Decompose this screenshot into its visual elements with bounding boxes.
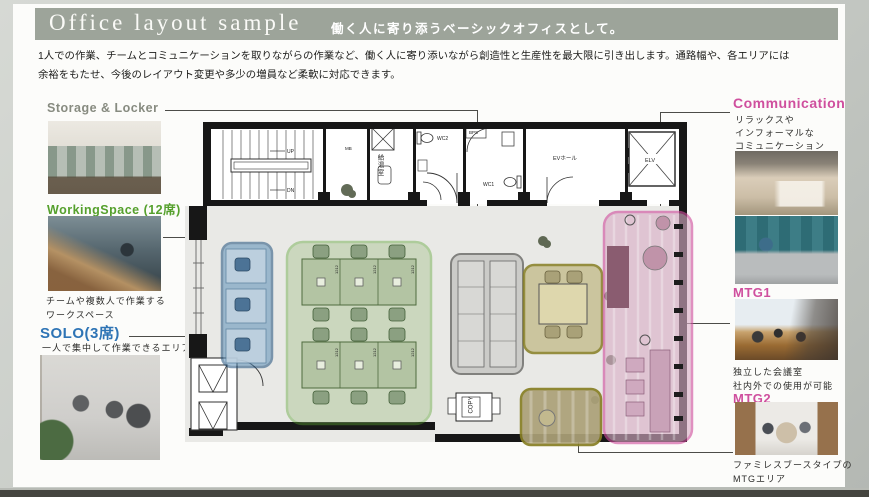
- storage-locker-label: Storage & Locker: [47, 101, 159, 115]
- copy-label: COPY: [469, 396, 475, 413]
- wc2-label: WC2: [437, 136, 448, 142]
- elevator: ELV: [625, 132, 675, 186]
- stair-dn-label: DN: [287, 188, 295, 194]
- mtg2-zone: [521, 389, 601, 445]
- ev-hall-label: EVホール: [553, 155, 577, 162]
- svg-text:1212: 1212: [334, 347, 339, 357]
- communication-sofa-photo: [735, 216, 838, 284]
- storage-shelving: [451, 254, 523, 374]
- svg-text:1212: 1212: [372, 347, 377, 357]
- sofa: [607, 246, 629, 308]
- mtg1-zone: [524, 265, 602, 353]
- intro-paragraph: 1人での作業、チームとコミュニケーションを取りながらの作業など、働く人に寄り添い…: [38, 47, 846, 86]
- elv-label: ELV: [645, 158, 655, 164]
- page-title: Office layout sample: [49, 10, 301, 36]
- workingspace-caption: チームや複数人で作業する ワークスペース: [46, 295, 166, 322]
- mtg1-caption: 独立した会議室 社内外での使用が可能: [733, 366, 833, 393]
- workingspace-photo: [48, 216, 161, 291]
- workingspace-zone: 1212 1212 1212 1212 1212 1212: [287, 242, 431, 424]
- communication-label: Communication: [733, 95, 845, 111]
- shaft-room: [191, 358, 237, 430]
- communication-caption: リラックスや インフォーマルな コミュニケーション: [735, 114, 825, 153]
- mtg2-photo: [735, 402, 838, 455]
- header-bar: Office layout sample 働く人に寄り添うベーシックオフィスとし…: [35, 8, 838, 40]
- wc1-label: WC1: [483, 182, 494, 188]
- mb-label: MB: [345, 146, 352, 151]
- communication-zone: [604, 212, 692, 443]
- desk-size-label: 1212: [334, 264, 339, 274]
- kitchen-label: 給湯室: [374, 154, 384, 177]
- floor-plan: UP DN MB WC2 BPS WC1 EVホール ELV: [175, 108, 712, 470]
- solo-photo: [40, 355, 160, 460]
- bottom-edge: [0, 488, 869, 497]
- stair-up-label: UP: [287, 149, 295, 155]
- mtg2-caption: ファミレスブースタイプの MTGエリア: [733, 459, 853, 486]
- communication-lounge-photo: [735, 151, 838, 215]
- page-subtitle: 働く人に寄り添うベーシックオフィスとして。: [331, 18, 624, 37]
- solo-zone: [222, 243, 272, 367]
- wc2-toilet-icon: [421, 134, 433, 143]
- svg-text:1212: 1212: [410, 264, 415, 274]
- mtg1-photo: [735, 299, 838, 360]
- svg-text:1212: 1212: [372, 264, 377, 274]
- solo-caption: 一人で集中して作業できるエリア: [42, 342, 192, 356]
- mtg1-label: MTG1: [733, 285, 771, 300]
- wc1-toilet-icon: [504, 178, 516, 187]
- svg-text:1212: 1212: [410, 347, 415, 357]
- storage-locker-photo: [48, 121, 161, 194]
- solo-label: SOLO(3席): [40, 322, 120, 343]
